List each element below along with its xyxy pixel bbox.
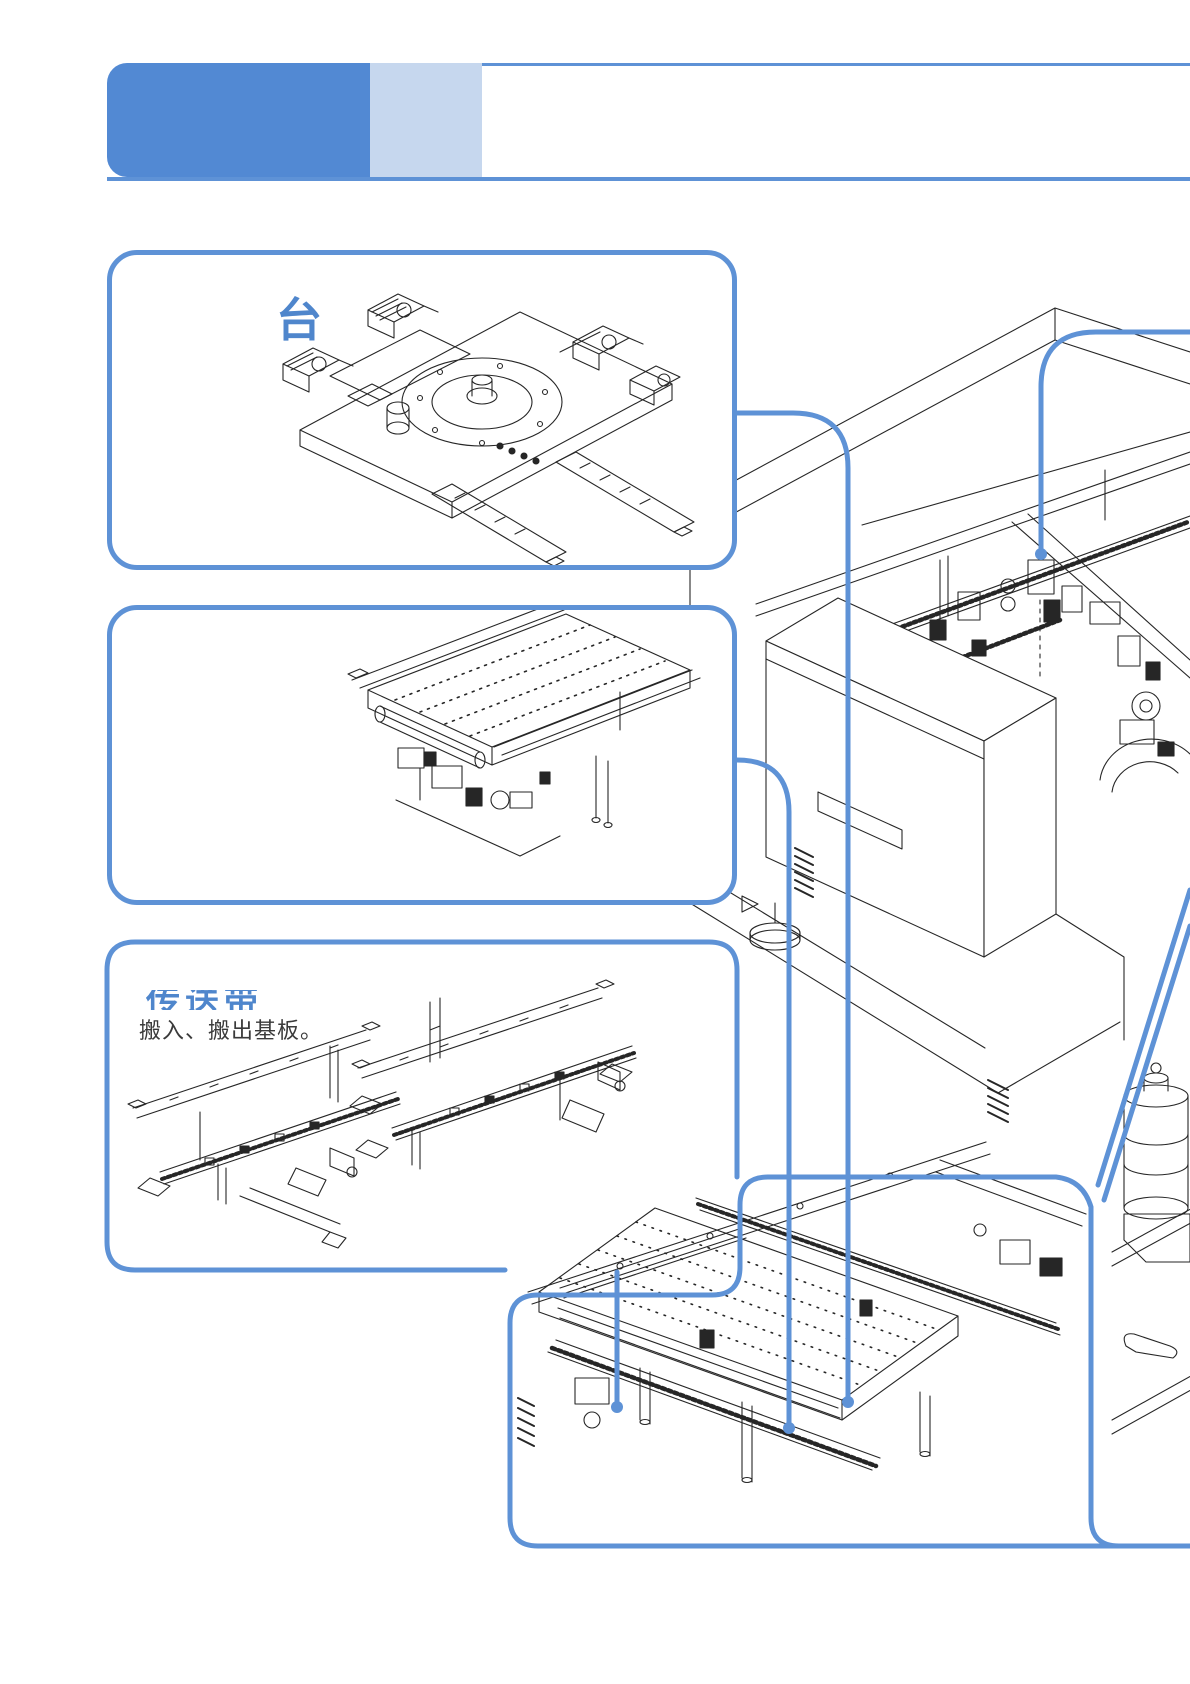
leader-endpoint-dots xyxy=(611,548,1047,1434)
manual-page: 台 xyxy=(0,0,1190,1684)
leader-diagonal-a xyxy=(1098,890,1190,1185)
callout-frames-and-leader-lines xyxy=(0,0,1190,1684)
conveyor-box-border xyxy=(107,942,737,1270)
detail-frame-right xyxy=(768,1177,1190,1546)
leader-transfer-table xyxy=(737,760,789,1428)
leader-rotary-stage xyxy=(737,413,848,1402)
leader-top-right xyxy=(1041,332,1190,554)
leader-diagonal-b xyxy=(1104,926,1190,1200)
